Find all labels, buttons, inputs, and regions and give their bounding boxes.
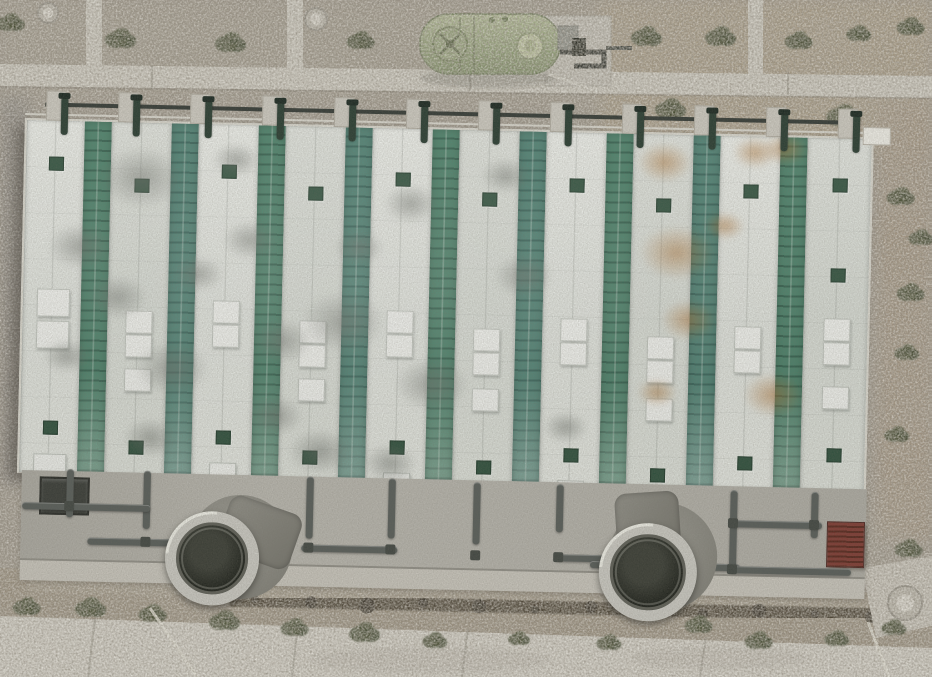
- gray-stain: [122, 417, 178, 458]
- pipe-elbow: [140, 537, 150, 547]
- gray-stain: [221, 220, 277, 261]
- red-grating: [826, 521, 865, 568]
- roof-skylight: [386, 334, 414, 358]
- roof-skylight: [212, 300, 240, 324]
- rust-stain: [742, 373, 803, 418]
- roof-skylight: [471, 388, 499, 412]
- roof-vent: [482, 192, 497, 206]
- riser-pipe: [133, 98, 141, 136]
- pipe-elbow: [553, 552, 563, 562]
- pipe-elbow: [385, 544, 395, 554]
- treatment-building: [15, 118, 875, 597]
- riser-elbow: [850, 111, 862, 117]
- riser-elbow: [58, 93, 70, 99]
- roof-skylight: [37, 288, 71, 317]
- roof-skylight: [823, 342, 851, 366]
- pipe-elbow: [303, 542, 313, 552]
- roof-vent: [569, 178, 584, 192]
- roof-vent: [737, 456, 752, 470]
- riser-pipe: [277, 102, 285, 140]
- riser-pipe: [61, 97, 69, 135]
- roof-vent: [656, 198, 671, 212]
- riser-elbow: [202, 96, 214, 102]
- pipe-elbow: [64, 501, 74, 511]
- roof-vent: [743, 184, 758, 198]
- process-pipe: [143, 471, 151, 529]
- gray-stain: [493, 254, 554, 299]
- gray-stain: [247, 395, 303, 436]
- riser-pipe: [421, 105, 429, 143]
- process-pipe: [306, 476, 314, 538]
- roof-skylight: [560, 318, 588, 342]
- process-pipe: [472, 482, 480, 544]
- process-pipe: [388, 478, 396, 538]
- roof-skylight: [823, 318, 851, 342]
- riser-elbow: [130, 94, 142, 100]
- riser-pipe: [205, 100, 213, 138]
- process-pipe: [811, 492, 819, 538]
- roof-vent: [43, 420, 58, 434]
- roof-vent: [830, 268, 845, 282]
- roof-skylight: [386, 310, 414, 334]
- riser-elbow: [706, 107, 718, 113]
- process-pipe: [556, 484, 564, 532]
- roof-skylight: [472, 352, 500, 376]
- riser-pipe: [349, 103, 357, 141]
- corner-junction-box: [863, 127, 891, 146]
- riser-elbow: [418, 101, 430, 107]
- aerial-photo-scene: [0, 0, 932, 677]
- riser-pipe: [852, 115, 860, 153]
- rust-stain: [660, 300, 716, 341]
- riser-elbow: [274, 98, 286, 104]
- roof-vent: [826, 448, 841, 462]
- roof-vent: [650, 468, 665, 482]
- roof-skylight: [473, 328, 501, 352]
- riser-elbow: [562, 104, 574, 110]
- roof-skylight: [734, 326, 762, 350]
- pipe-elbow: [809, 520, 819, 530]
- pipe-elbow: [727, 564, 737, 574]
- roof-vent: [833, 178, 848, 192]
- riser-elbow: [490, 103, 502, 109]
- roof-skylight: [298, 378, 326, 402]
- striped-roof: [17, 118, 874, 492]
- riser-pipe: [564, 108, 572, 146]
- riser-pipe: [780, 113, 788, 151]
- gray-stain: [252, 319, 313, 364]
- riser-pipe: [708, 112, 716, 150]
- riser-elbow: [778, 109, 790, 115]
- roof-skylight: [822, 386, 850, 410]
- gray-stain: [87, 275, 148, 320]
- roof-vent: [216, 430, 231, 444]
- roof-vent: [49, 157, 64, 171]
- roof-vent: [308, 186, 323, 200]
- riser-elbow: [634, 106, 646, 112]
- riser-pipe: [636, 110, 644, 148]
- roof-skylight: [647, 336, 675, 360]
- riser-pipe: [493, 107, 501, 145]
- pipe-elbow: [728, 518, 738, 528]
- roof-vent: [563, 448, 578, 462]
- roof-skylight: [560, 342, 588, 366]
- roof-skylight: [733, 350, 761, 374]
- gray-stain: [382, 183, 438, 224]
- roof-skylight: [212, 324, 240, 348]
- pipe-elbow: [470, 550, 480, 560]
- riser-elbow: [346, 99, 358, 105]
- roof-vent: [476, 460, 491, 474]
- rust-stain: [636, 142, 692, 183]
